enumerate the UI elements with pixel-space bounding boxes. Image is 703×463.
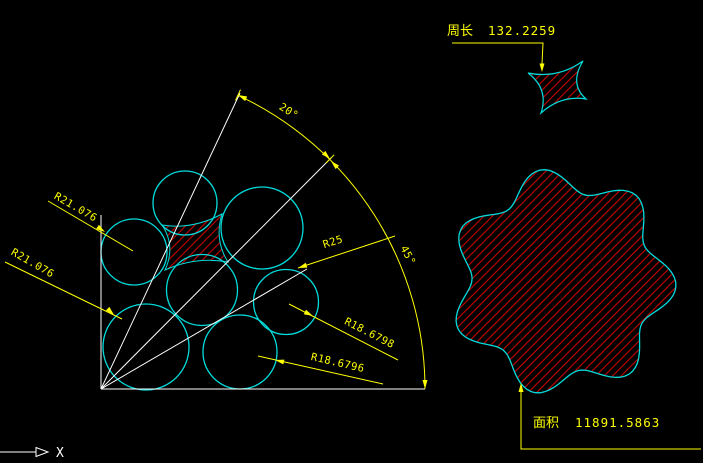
dim-arrow xyxy=(304,310,313,316)
area-figure: 面积 11891.5863 xyxy=(456,170,701,449)
angle-label-45: 45° xyxy=(398,244,418,268)
area-value: 11891.5863 xyxy=(575,415,660,430)
perimeter-figure: 周长 132.2259 xyxy=(447,23,586,113)
flower-shape xyxy=(456,170,676,393)
cad-drawing-canvas[interactable]: R21.076 R21.076 R25 R18.6798 R18.6796 20… xyxy=(0,0,703,463)
packed-circle xyxy=(254,270,319,335)
perimeter-label: 周长 xyxy=(447,24,473,39)
dim-arrow xyxy=(322,151,330,159)
dim-arrow xyxy=(540,64,545,73)
dim-arrow xyxy=(423,380,428,389)
leader-r21-bottom xyxy=(5,262,122,319)
construction-line-30deg xyxy=(101,269,307,389)
dim-arrow xyxy=(106,307,114,315)
packed-circle xyxy=(203,315,277,389)
radius-label-r25: R25 xyxy=(321,233,344,251)
dim-arrow xyxy=(238,95,247,101)
perimeter-value: 132.2259 xyxy=(488,23,556,38)
sector-figure: R21.076 R21.076 R25 R18.6798 R18.6796 20… xyxy=(5,90,428,390)
dim-arrow xyxy=(275,360,284,365)
axis-x-label: X xyxy=(56,446,64,461)
area-label: 面积 xyxy=(533,416,559,431)
dim-arrow xyxy=(298,263,307,268)
leader-r25 xyxy=(298,236,395,268)
packed-circle xyxy=(167,255,238,326)
radius-label-r18-bottom: R18.6796 xyxy=(310,351,366,375)
perimeter-leader xyxy=(452,43,543,64)
axis-indicator: X xyxy=(0,446,64,461)
gap-region-hatched xyxy=(162,214,228,270)
construction-line-45deg xyxy=(101,157,332,389)
cad-drawing: R21.076 R21.076 R25 R18.6798 R18.6796 20… xyxy=(0,0,703,463)
packed-circle xyxy=(103,304,189,390)
construction-lines xyxy=(101,93,425,389)
packed-circle xyxy=(101,219,167,285)
axis-arrow-icon xyxy=(36,448,48,457)
astroid-shape xyxy=(528,61,586,113)
